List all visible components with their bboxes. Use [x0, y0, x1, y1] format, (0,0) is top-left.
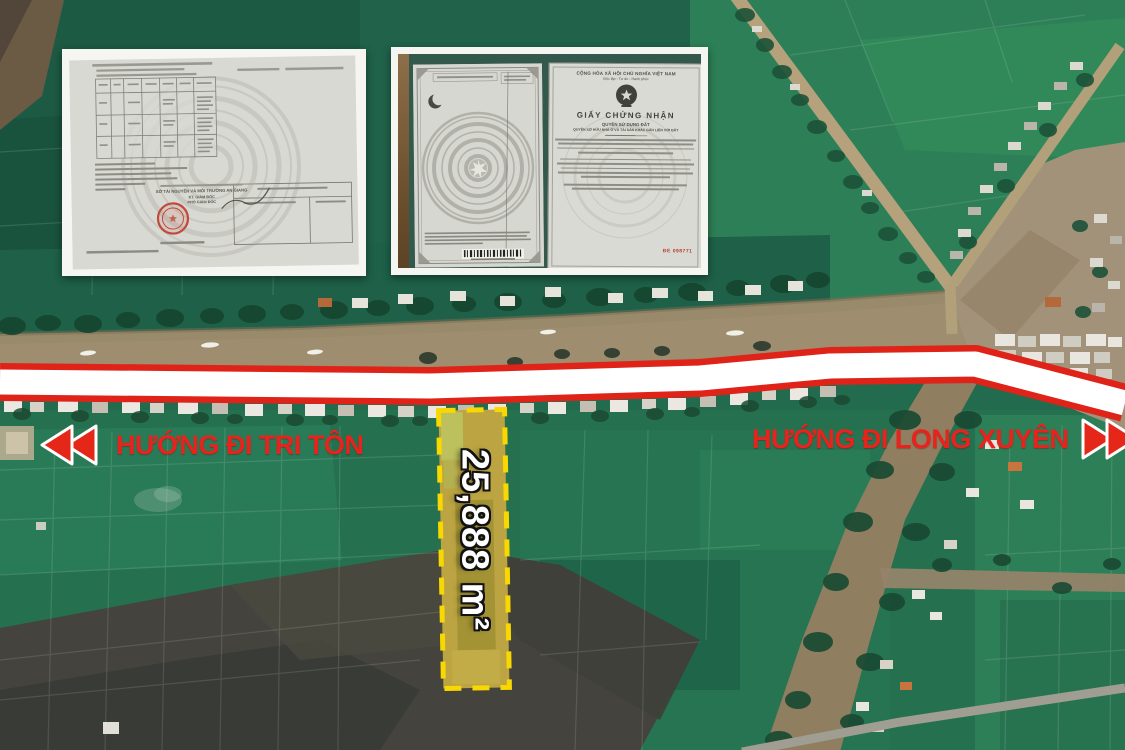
body-line — [581, 176, 670, 178]
body-line — [555, 139, 696, 142]
listing-promo-image: SỞ TÀI NGUYÊN VÀ MÔI TRƯỜNG AN GIANG KT.… — [0, 0, 1125, 750]
divider — [605, 135, 647, 136]
certificate-serial: ĐE 098771 — [663, 248, 693, 254]
national-motto-line2: Độc lập - Tự do - Hạnh phúc — [550, 76, 701, 81]
direction-label-tri-ton: HƯỚNG ĐI TRI TÔN — [36, 421, 363, 469]
body-line — [558, 171, 693, 174]
certificate-annex-decor — [69, 56, 359, 270]
date-line — [161, 184, 242, 187]
direction-text-right: HƯỚNG ĐI LONG XUYÊN — [752, 424, 1068, 455]
cover-page-decor — [413, 63, 544, 267]
body-line — [561, 167, 690, 169]
certificate-title: GIẤY CHỨNG NHẬN — [549, 110, 701, 120]
certificate-subtitle-1: QUYỀN SỬ DỤNG ĐẤT — [549, 121, 701, 127]
double-chevron-left-icon — [36, 423, 98, 467]
body-line — [564, 183, 686, 185]
direction-label-long-xuyen: HƯỚNG ĐI LONG XUYÊN — [752, 415, 1125, 463]
body-line — [578, 152, 673, 154]
photo-backdrop: CỘNG HÒA XÃ HỘI CHỦ NGHĨA VIỆT NAM Độc l… — [398, 54, 701, 268]
national-motto-line1: CỘNG HÒA XÃ HỘI CHỦ NGHĨA VIỆT NAM — [550, 70, 701, 76]
certificate-title-page: CỘNG HÒA XÃ HỘI CHỦ NGHĨA VIỆT NAM Độc l… — [547, 62, 701, 268]
table-edge — [398, 54, 409, 268]
red-stamp — [158, 203, 189, 234]
barcode — [462, 249, 524, 261]
national-emblem-icon — [613, 83, 639, 109]
plot-area-label: 25,888 m² — [453, 449, 496, 631]
body-line — [557, 147, 695, 150]
body-line — [557, 163, 695, 166]
body-line — [558, 143, 693, 146]
land-certificate-photo-right: CỘNG HÒA XÃ HỘI CHỦ NGHĨA VIỆT NAM Độc l… — [391, 47, 708, 275]
certificate-cover-page — [413, 63, 544, 267]
direction-text-left: HƯỚNG ĐI TRI TÔN — [116, 430, 363, 461]
body-line — [560, 158, 692, 161]
double-chevron-right-icon — [1081, 416, 1125, 462]
certificate-page-annex: SỞ TÀI NGUYÊN VÀ MÔI TRƯỜNG AN GIANG KT.… — [69, 56, 359, 270]
certificate-subtitle-2: QUYỀN SỞ HỮU NHÀ Ở VÀ TÀI SẢN KHÁC GẮN L… — [549, 127, 701, 132]
signature-block: SỞ TÀI NGUYÊN VÀ MÔI TRƯỜNG AN GIANG KT.… — [131, 183, 271, 207]
land-certificate-photo-left: SỞ TÀI NGUYÊN VÀ MÔI TRƯỜNG AN GIANG KT.… — [62, 49, 366, 276]
